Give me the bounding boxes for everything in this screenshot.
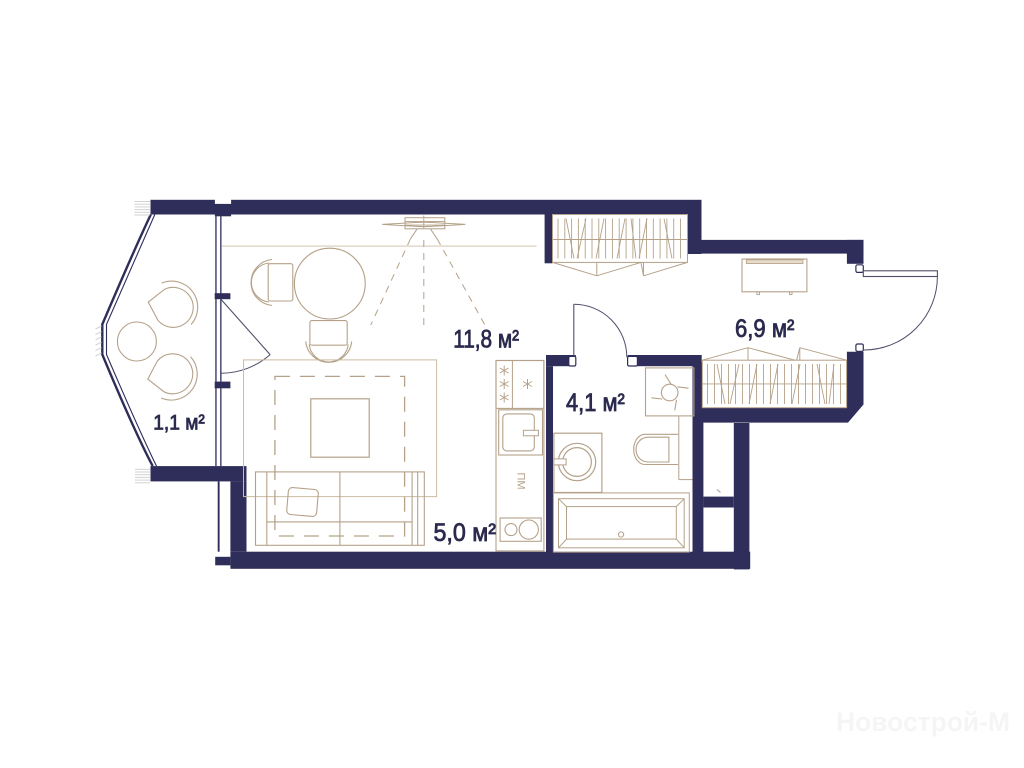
svg-text:ПМ: ПМ bbox=[515, 472, 527, 489]
svg-text:5,0 м²: 5,0 м² bbox=[434, 519, 497, 547]
svg-text:4,1 м²: 4,1 м² bbox=[566, 389, 625, 417]
svg-text:1,1 м²: 1,1 м² bbox=[153, 411, 205, 434]
svg-text:6,9 м²: 6,9 м² bbox=[735, 315, 794, 343]
svg-text:11,8 м²: 11,8 м² bbox=[453, 325, 519, 353]
svg-text:Новострой-М: Новострой-М bbox=[836, 707, 1010, 737]
